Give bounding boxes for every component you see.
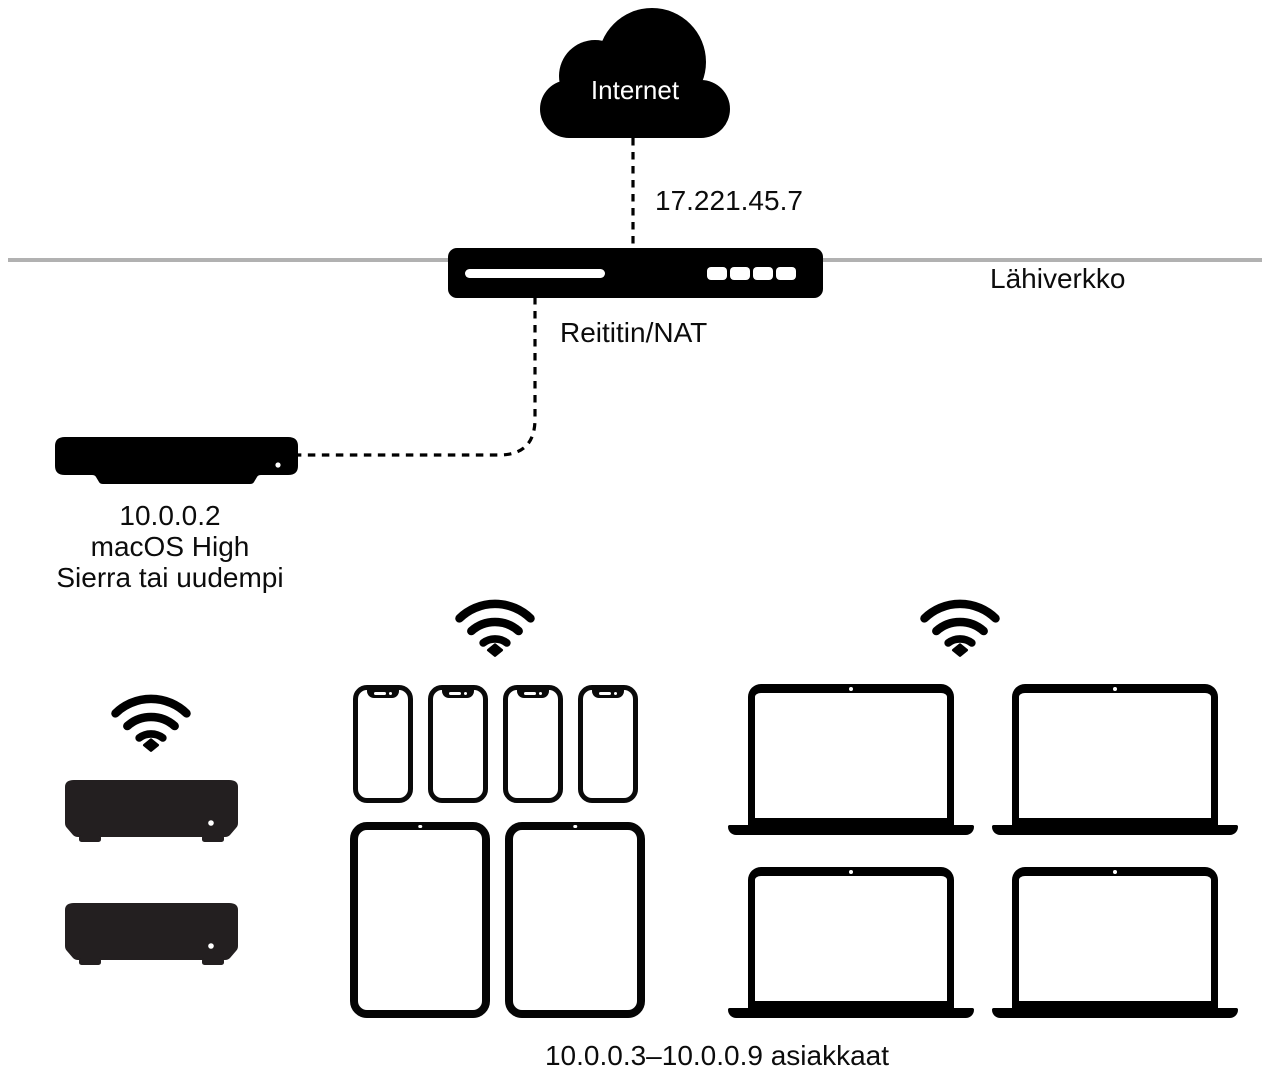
iphone-icon [428, 685, 488, 803]
laptop-base [992, 825, 1238, 835]
iphone-icon [578, 685, 638, 803]
router-device [448, 248, 823, 298]
ipad-camera [418, 825, 422, 829]
phone-speaker [449, 692, 461, 695]
wifi-icon [450, 593, 540, 659]
phone-notch [517, 689, 549, 698]
iphone-icon [503, 685, 563, 803]
phone-camera [464, 692, 467, 695]
iphone-icon [353, 685, 413, 803]
phone-camera [539, 692, 542, 695]
laptop-camera [1113, 687, 1117, 691]
server-mac-mini [55, 437, 298, 489]
mac-mini-icon [65, 903, 238, 965]
macbook-group [728, 684, 1238, 1018]
laptop-camera [1113, 870, 1117, 874]
phone-camera [614, 692, 617, 695]
phone-speaker [599, 692, 611, 695]
laptop-screen [1012, 684, 1218, 825]
router-port [776, 267, 796, 280]
phone-notch [592, 689, 624, 698]
power-led [208, 943, 214, 949]
network-diagram: Internet 17.221.45.7 Reititin/NAT Lähive… [0, 0, 1269, 1080]
phone-notch [367, 689, 399, 698]
macbook-icon [992, 684, 1238, 835]
server-connector-line [298, 297, 535, 455]
laptop-screen [748, 684, 954, 825]
cloud-icon [540, 4, 730, 138]
iphone-group [353, 685, 638, 803]
mac-mini-server-icon [55, 437, 298, 484]
wifi-icon [106, 688, 196, 754]
router-port [730, 267, 750, 280]
power-led [208, 820, 214, 826]
phone-speaker [374, 692, 386, 695]
mac-mini-client-group [65, 780, 238, 965]
router-port [707, 267, 727, 280]
macbook-icon [728, 684, 974, 835]
router-slot [465, 269, 605, 278]
laptop-base [728, 825, 974, 835]
macbook-icon [992, 867, 1238, 1018]
internet-cloud: Internet [540, 4, 730, 138]
laptop-screen [748, 867, 954, 1008]
phone-notch [442, 689, 474, 698]
laptop-camera [849, 870, 853, 874]
macbook-icon [728, 867, 974, 1018]
phone-speaker [524, 692, 536, 695]
phone-camera [389, 692, 392, 695]
ipad-camera [573, 825, 577, 829]
ipad-icon [350, 822, 490, 1018]
router-ports [707, 267, 796, 280]
ipad-group [350, 822, 645, 1018]
internet-label: Internet [540, 75, 730, 106]
laptop-base [728, 1008, 974, 1018]
power-led [275, 462, 280, 467]
laptop-camera [849, 687, 853, 691]
laptop-screen [1012, 867, 1218, 1008]
laptop-base [992, 1008, 1238, 1018]
ipad-icon [505, 822, 645, 1018]
mac-mini-icon [65, 780, 238, 842]
wifi-icon [915, 593, 1005, 659]
router-port [753, 267, 773, 280]
